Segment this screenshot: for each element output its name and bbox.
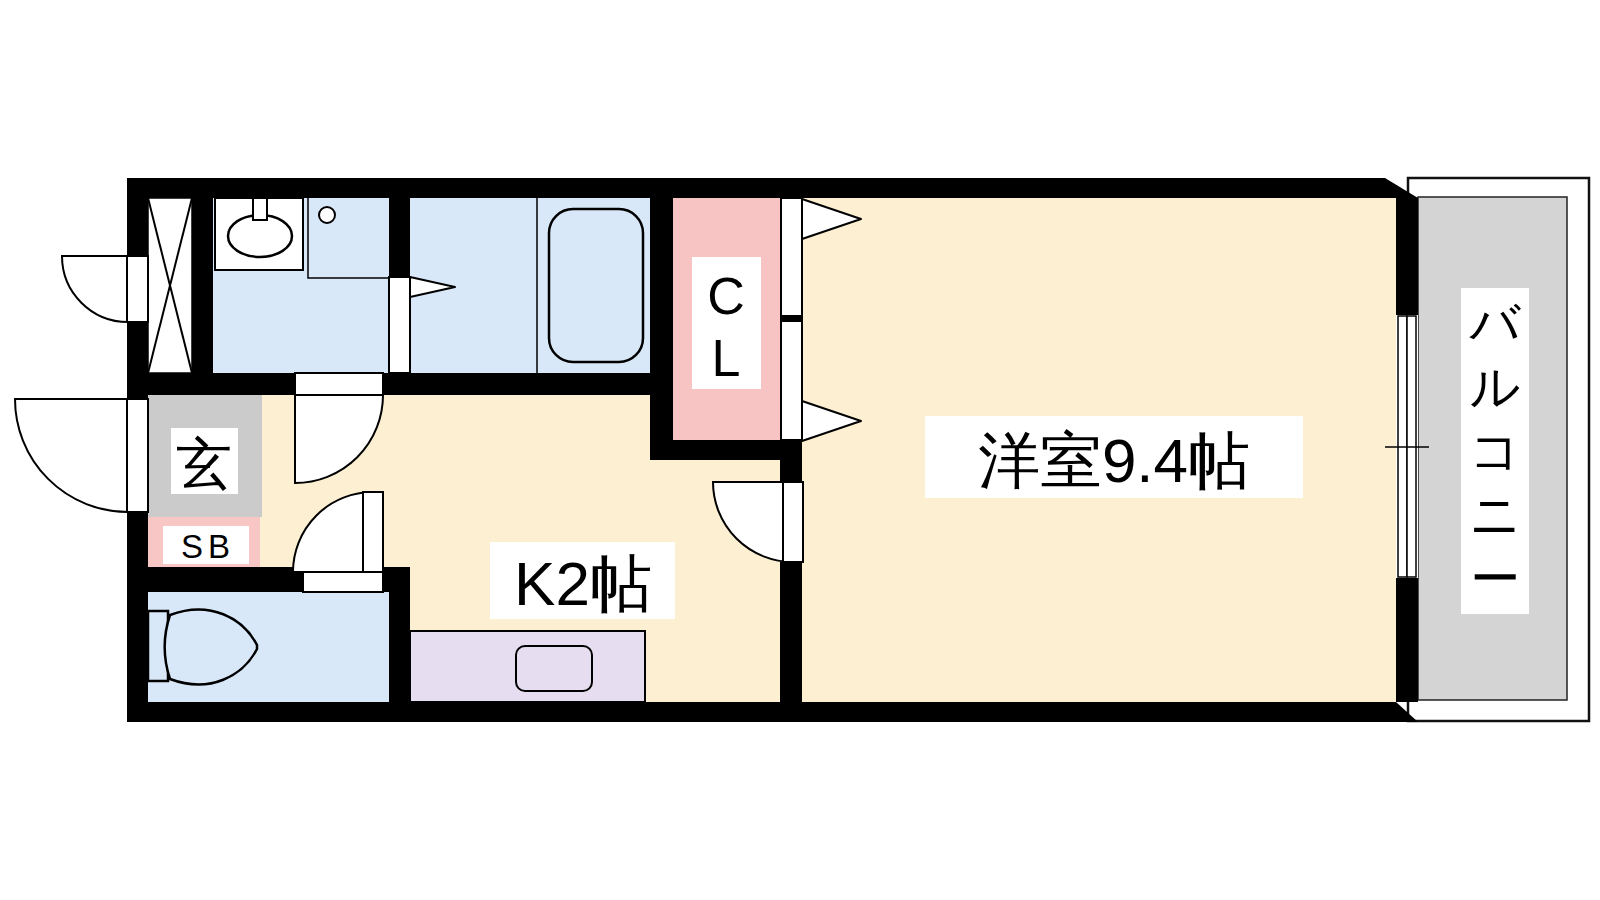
entrance-door-leaf xyxy=(127,399,148,512)
wall-kitchen-room xyxy=(780,562,802,702)
toilet-door-leaf xyxy=(363,492,383,572)
entrance-label: 玄 xyxy=(176,432,232,495)
washbasin-sink xyxy=(228,215,292,257)
floorplan-drawing: 洋室9.4帖 K2帖 C L 玄 SB バ ル コ ニ ー xyxy=(0,0,1600,900)
floorplan-canvas: 洋室9.4帖 K2帖 C L 玄 SB バ ル コ ニ ー xyxy=(0,0,1600,900)
wall-right-lower xyxy=(1396,578,1418,702)
balcony-label-char5: ー xyxy=(1470,551,1520,607)
kitchen-door-leaf xyxy=(783,482,803,562)
wall-hatch-right xyxy=(192,198,213,373)
kitchen-fixtures xyxy=(410,631,645,702)
balcony-label-char3: コ xyxy=(1469,423,1520,479)
balcony-label-char2: ル xyxy=(1469,359,1520,415)
utility-door-leaf xyxy=(127,256,148,322)
washroom-door-leaf xyxy=(295,373,383,395)
wall-washroom-bathroom xyxy=(389,198,410,277)
kitchen-label: K2帖 xyxy=(514,549,652,618)
wall-kitchen-stub xyxy=(780,458,802,482)
wall-right-upper xyxy=(1396,198,1418,315)
wall-bottom xyxy=(127,702,1418,722)
closet-door-divider xyxy=(781,315,802,322)
closet-label-l: L xyxy=(712,329,741,387)
wall-washroom-bottom xyxy=(127,373,673,395)
closet-label-c: C xyxy=(707,267,745,325)
wall-toilet-right xyxy=(389,567,410,702)
utility-hatch-box xyxy=(148,198,192,373)
wall-closet-bottom xyxy=(650,440,802,460)
toilet-door-opening xyxy=(303,572,383,592)
balcony-label-char1: バ xyxy=(1468,295,1521,351)
washbasin-tap xyxy=(253,198,267,220)
bathroom-door-leaf xyxy=(389,277,410,373)
washer-faucet-icon xyxy=(319,207,335,223)
wall-closet-left xyxy=(650,198,673,460)
balcony-label-char4: ニ xyxy=(1469,487,1520,543)
shoebox-label: SB xyxy=(181,528,235,565)
western-room-label: 洋室9.4帖 xyxy=(978,426,1250,495)
wall-top xyxy=(127,178,1418,198)
